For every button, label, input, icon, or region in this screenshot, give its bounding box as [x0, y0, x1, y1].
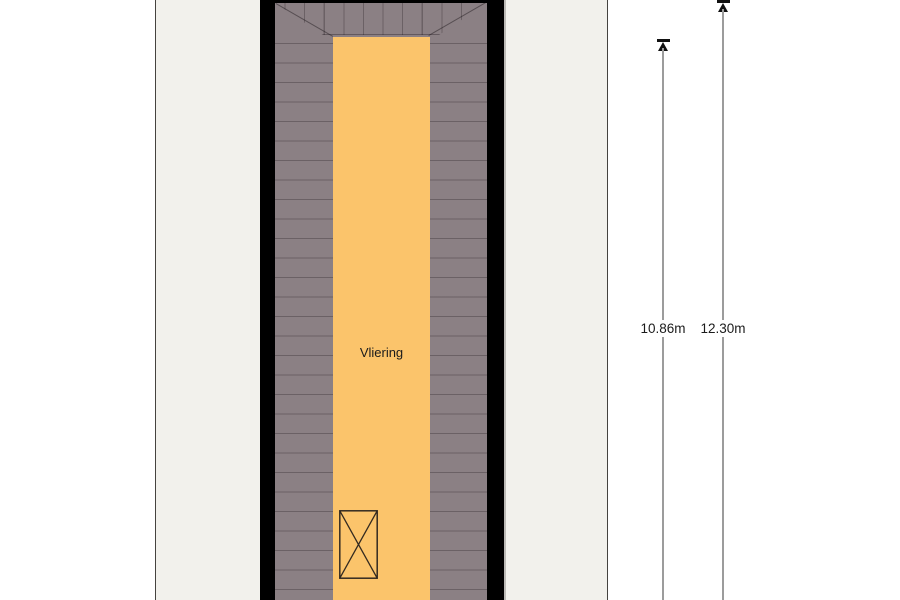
wall-right-shadow	[504, 0, 506, 600]
dimension-outer-line	[722, 9, 724, 600]
roof-plane-right-hatch	[430, 34, 487, 600]
wall-left	[260, 0, 275, 600]
roof-plane-left-hatch	[275, 34, 333, 600]
room-label: Vliering	[333, 345, 430, 360]
floorplan-viewer: { "plan": { "room_label": "Vliering" }, …	[0, 0, 900, 600]
dimension-outer-label: 12.30m	[697, 320, 748, 337]
wall-right	[487, 0, 504, 600]
wall-top	[260, 0, 504, 3]
loft-hatch-cross-icon	[339, 510, 378, 579]
dimension-inner-label: 10.86m	[637, 320, 688, 337]
